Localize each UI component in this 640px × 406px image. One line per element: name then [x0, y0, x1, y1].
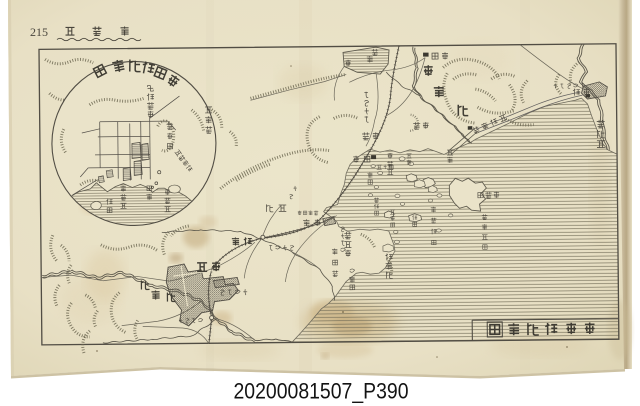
- svg-text:20200081507_P390: 20200081507_P390: [234, 379, 409, 404]
- svg-text:215: 215: [30, 25, 48, 39]
